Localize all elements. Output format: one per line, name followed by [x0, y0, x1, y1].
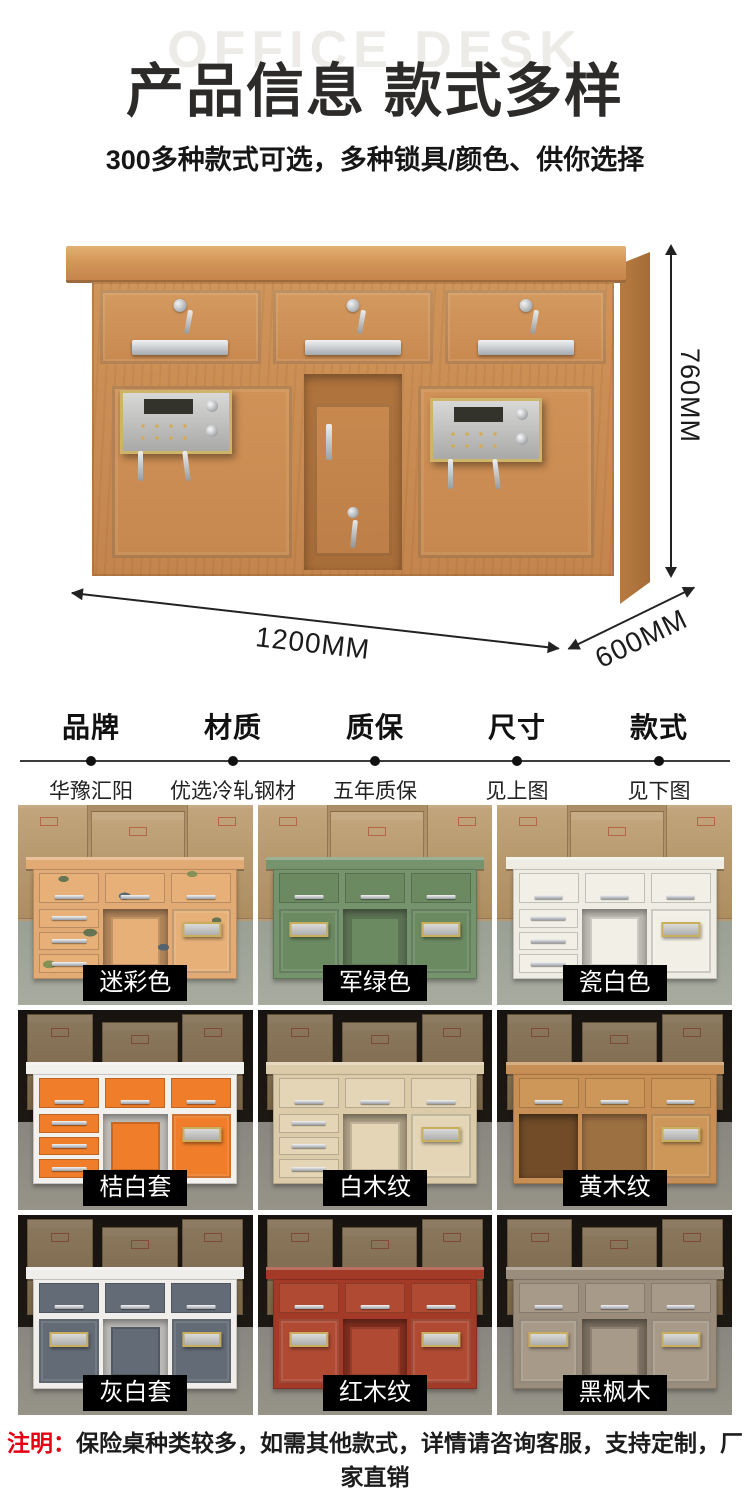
- box-print-mark: [610, 1035, 628, 1044]
- left-cabinet: [39, 1114, 99, 1178]
- variant-label: 桔白套: [83, 1170, 187, 1206]
- lock-panel-keypad: [446, 428, 507, 452]
- variant-grid: 迷彩色: [18, 805, 732, 1415]
- keyhole-icon: [348, 507, 359, 518]
- drawer-handle: [361, 1100, 390, 1104]
- desk-side-panel: [620, 252, 650, 604]
- desk-tabletop: [266, 1267, 484, 1279]
- desk-drawer: [519, 1078, 579, 1108]
- drawer-handle: [478, 340, 574, 355]
- keyhole-icon: [516, 408, 528, 420]
- spec-dot-icon: [654, 756, 664, 766]
- desk-lower: [279, 909, 471, 973]
- desk-tabletop: [26, 1267, 244, 1279]
- spec-column: 品牌 华豫汇阳: [20, 705, 162, 805]
- variant-label: 瓷白色: [563, 965, 667, 1001]
- right-cabinet-door: [172, 1319, 232, 1383]
- combination-lock-panel: [289, 922, 328, 937]
- drawer-lock-icon: [519, 299, 532, 312]
- arrow-up-icon: [665, 244, 677, 255]
- right-cabinet: [172, 1319, 232, 1383]
- desk-drawer: [279, 1114, 339, 1133]
- box-print-mark: [279, 817, 297, 826]
- drawer-row: [519, 1283, 711, 1313]
- drawer-handle: [361, 895, 390, 899]
- desk-thumbnail: [273, 1062, 477, 1184]
- desk-thumbnail: [513, 857, 717, 979]
- desk-thumbnail: [273, 1267, 477, 1389]
- combination-lock-panel: [182, 1332, 221, 1347]
- middle-door: [111, 1122, 160, 1171]
- box-print-mark: [371, 1240, 389, 1249]
- right-cabinet: [406, 374, 606, 570]
- left-cabinet-door: [279, 1319, 339, 1383]
- left-cabinet: [39, 909, 99, 973]
- hanging-key-icon: [138, 451, 143, 481]
- desk-thumbnail: [33, 1267, 237, 1389]
- desk-drawer: [39, 1114, 99, 1133]
- variant-label: 军绿色: [323, 965, 427, 1001]
- keyhole-icon: [516, 433, 528, 445]
- drawer-handle: [305, 340, 401, 355]
- kneehole-recess: [304, 374, 402, 570]
- left-drawer-stack: [39, 1114, 99, 1178]
- combination-lock-panel: [661, 922, 700, 937]
- desk-tabletop: [66, 246, 626, 280]
- desk-drawer: [519, 873, 579, 903]
- spec-column: 质保 五年质保: [304, 705, 446, 805]
- drawer-handle: [291, 1167, 326, 1171]
- combination-lock-panel: [289, 1332, 328, 1347]
- drawer-row: [279, 1283, 471, 1313]
- drawer-handle: [600, 1100, 629, 1104]
- kneehole-recess: [103, 909, 168, 973]
- desk-drawer: [651, 1283, 711, 1313]
- desk-drawer: [519, 1283, 579, 1313]
- desk-body: [513, 869, 717, 979]
- desk-drawer: [171, 1283, 231, 1313]
- drawer-handle: [55, 895, 84, 899]
- product-photo: 760MM 1200MM 600MM: [0, 200, 750, 690]
- lock-panel-lcd: [454, 407, 503, 423]
- drawer-handle: [666, 1100, 695, 1104]
- box-print-mark: [443, 1028, 461, 1037]
- drawer-handle: [291, 1121, 326, 1125]
- right-cabinet-door: [651, 909, 711, 973]
- combination-lock-panel: [120, 390, 232, 454]
- height-dimension-arrow: [670, 246, 672, 576]
- box-print-mark: [51, 1028, 69, 1037]
- desk-drawer: [651, 873, 711, 903]
- desk-tabletop: [506, 857, 724, 869]
- box-print-mark: [697, 817, 715, 826]
- desk-lower: [519, 909, 711, 973]
- drawer-handle: [666, 1305, 695, 1309]
- middle-door: [314, 404, 392, 556]
- lock-panel-keypad: [136, 420, 197, 444]
- spec-value: 优选冷轧钢材: [162, 775, 304, 805]
- box-print-mark: [443, 1233, 461, 1242]
- drawer-lock-icon: [347, 299, 360, 312]
- kneehole-recess: [582, 1319, 647, 1383]
- desk-lower: [519, 1319, 711, 1383]
- desk-drawer: [39, 932, 99, 951]
- box-print-mark: [291, 1028, 309, 1037]
- variant-label: 迷彩色: [83, 965, 187, 1001]
- spec-value: 五年质保: [304, 775, 446, 805]
- drawer-handle: [121, 1305, 150, 1309]
- kneehole-recess: [343, 1114, 408, 1178]
- drawer-row: [519, 873, 711, 903]
- drawer-handle: [534, 1100, 563, 1104]
- variant-photo: 黄木纹: [497, 1010, 732, 1210]
- variant-label: 红木纹: [323, 1375, 427, 1411]
- middle-door: [350, 1327, 399, 1376]
- right-cabinet: [651, 1319, 711, 1383]
- desk-drawer: [345, 1283, 405, 1313]
- hanging-key-icon: [448, 459, 453, 489]
- spec-column: 材质 优选冷轧钢材: [162, 705, 304, 805]
- drawer-handle: [52, 1167, 87, 1171]
- combination-lock-panel: [529, 1332, 568, 1347]
- spec-strip: 品牌 华豫汇阳 材质 优选冷轧钢材 质保 五年质保 尺寸 见上图 款式 见下图: [20, 705, 730, 800]
- left-cabinet-door: [519, 1319, 579, 1383]
- box-print-mark: [218, 817, 236, 826]
- note-text: 保险桌种类较多，如需其他款式，详情请咨询客服，支持定制，厂家直销: [76, 1430, 743, 1489]
- desk-drawer: [39, 1137, 99, 1156]
- right-cabinet: [411, 1319, 471, 1383]
- box-print-mark: [519, 817, 537, 826]
- arrow-down-icon: [665, 567, 677, 578]
- drawer-handle: [361, 1305, 390, 1309]
- left-cabinet: [39, 1319, 99, 1383]
- box-print-mark: [368, 827, 386, 836]
- kneehole-recess: [103, 1114, 168, 1178]
- left-cabinet: [100, 374, 304, 570]
- spec-value: 见下图: [588, 775, 730, 805]
- drawer-handle: [121, 895, 150, 899]
- variant-photo: 黑枫木: [497, 1215, 732, 1415]
- middle-door: [350, 1122, 399, 1171]
- variant-label: 黄木纹: [563, 1170, 667, 1206]
- drawer-row: [39, 1283, 231, 1313]
- left-cabinet: [279, 1114, 339, 1178]
- variant-photo: 瓷白色: [497, 805, 732, 1005]
- desk-lower: [39, 1114, 231, 1178]
- drawer-handle: [295, 1305, 324, 1309]
- drawer-handle: [600, 1305, 629, 1309]
- desk-tabletop: [266, 857, 484, 869]
- desk-thumbnail: [33, 857, 237, 979]
- width-dimension-label: 1200MM: [67, 600, 557, 687]
- drawer-handle: [295, 895, 324, 899]
- drawer-handle: [52, 962, 87, 966]
- drawer-handle: [121, 1100, 150, 1104]
- desk-body: [273, 1074, 477, 1184]
- hanging-key-icon: [357, 310, 366, 335]
- drawer-handle: [52, 916, 87, 920]
- drawer-lock-icon: [174, 299, 187, 312]
- kneehole-recess: [103, 1319, 168, 1383]
- desk-drawer: [171, 873, 231, 903]
- drawer-handle: [600, 895, 629, 899]
- box-print-mark: [51, 1233, 69, 1242]
- box-print-mark: [204, 1028, 222, 1037]
- desk-drawer: [585, 1283, 645, 1313]
- bottom-note: 注明：保险桌种类较多，如需其他款式，详情请咨询客服，支持定制，厂家直销: [0, 1424, 750, 1489]
- desk-lower: [279, 1114, 471, 1178]
- desk-thumbnail: [513, 1062, 717, 1184]
- desk-tabletop: [26, 857, 244, 869]
- drawer-handle: [291, 1144, 326, 1148]
- hanging-key-icon: [350, 520, 358, 548]
- desk-drawer: [345, 1078, 405, 1108]
- desk-body: [513, 1279, 717, 1389]
- keyhole-icon: [206, 400, 218, 412]
- product-info-page: OFFICE DESK 产品信息 款式多样 300多种款式可选，多种锁具/颜色、…: [0, 0, 750, 1489]
- drawer-handle: [52, 939, 87, 943]
- variant-photo: 迷彩色: [18, 805, 253, 1005]
- right-cabinet: [172, 909, 232, 973]
- right-cabinet-door: [172, 909, 232, 973]
- combination-lock-panel: [422, 1332, 461, 1347]
- box-print-mark: [683, 1028, 701, 1037]
- drawer-handle: [55, 1305, 84, 1309]
- left-cabinet-door: [39, 1319, 99, 1383]
- box-print-mark: [131, 1035, 149, 1044]
- variant-photo: 桔白套: [18, 1010, 253, 1210]
- kneehole-recess: [582, 909, 647, 973]
- box-print-mark: [608, 827, 626, 836]
- box-print-mark: [458, 817, 476, 826]
- desk-body: [33, 869, 237, 979]
- desk-thumbnail: [33, 1062, 237, 1184]
- middle-door: [590, 1327, 639, 1376]
- right-cabinet-door: [411, 1319, 471, 1383]
- drawer-handle: [427, 1100, 456, 1104]
- drawer-handle: [295, 1100, 324, 1104]
- drawer-row: [519, 1078, 711, 1108]
- desk-drawer: [100, 290, 261, 364]
- drawer-handle: [132, 340, 228, 355]
- drawer-row: [279, 873, 471, 903]
- spec-column: 款式 见下图: [588, 705, 730, 805]
- kneehole-recess: [343, 909, 408, 973]
- spec-dot-icon: [228, 756, 238, 766]
- desk-drawer: [411, 1078, 471, 1108]
- middle-door: [350, 917, 399, 966]
- desk-tabletop: [26, 1062, 244, 1074]
- spec-label: 品牌: [20, 705, 162, 747]
- right-cabinet-door: [651, 1319, 711, 1383]
- left-drawer-stack: [519, 909, 579, 973]
- drawer-handle: [427, 895, 456, 899]
- desk-thumbnail: [513, 1267, 717, 1389]
- desk-drawer: [519, 909, 579, 928]
- depth-dimension: 600MM: [568, 587, 711, 684]
- middle-door-handle: [326, 424, 332, 460]
- box-print-mark: [40, 817, 58, 826]
- spec-value: 华豫汇阳: [20, 775, 162, 805]
- right-cabinet: [651, 909, 711, 973]
- note-prefix: 注明：: [7, 1430, 76, 1456]
- lock-panel-lcd: [144, 399, 193, 415]
- desk-lower: [39, 1319, 231, 1383]
- desk-body: [273, 1279, 477, 1389]
- left-cabinet: [519, 1114, 579, 1178]
- spec-label: 款式: [588, 705, 730, 747]
- keyhole-icon: [206, 425, 218, 437]
- desk-drawer: [39, 1283, 99, 1313]
- combination-lock-panel: [49, 1332, 88, 1347]
- desk-drawer: [411, 873, 471, 903]
- left-cabinet: [519, 909, 579, 973]
- combination-lock-panel: [182, 1127, 221, 1142]
- combination-lock-panel: [422, 1127, 461, 1142]
- spec-dot-icon: [370, 756, 380, 766]
- combination-lock-panel: [661, 1332, 700, 1347]
- desk-drawer: [39, 1078, 99, 1108]
- spec-dot-icon: [512, 756, 522, 766]
- right-cabinet: [411, 909, 471, 973]
- drawer-row: [39, 1078, 231, 1108]
- desk-drawer: [279, 1283, 339, 1313]
- desk-drawer: [585, 873, 645, 903]
- left-drawer-stack: [39, 909, 99, 973]
- combination-lock-panel: [430, 398, 542, 462]
- desk-drawer: [651, 1078, 711, 1108]
- middle-door: [111, 917, 160, 966]
- drawer-row: [100, 290, 606, 364]
- drawer-handle: [531, 939, 566, 943]
- desk-drawer: [279, 873, 339, 903]
- box-print-mark: [531, 1233, 549, 1242]
- drawer-handle: [531, 962, 566, 966]
- right-cabinet-door: [411, 1114, 471, 1178]
- box-print-mark: [610, 1240, 628, 1249]
- left-cabinet: [279, 1319, 339, 1383]
- open-compartment: [519, 1114, 579, 1178]
- desk-drawer: [585, 1078, 645, 1108]
- desk-body: [273, 869, 477, 979]
- middle-door: [111, 1327, 160, 1376]
- page-subtitle: 300多种款式可选，多种锁具/颜色、供你选择: [0, 138, 750, 177]
- spec-dot-icon: [86, 756, 96, 766]
- box-print-mark: [683, 1233, 701, 1242]
- middle-door: [590, 917, 639, 966]
- height-dimension-label: 760MM: [674, 348, 705, 443]
- left-cabinet: [279, 909, 339, 973]
- right-cabinet-door: [172, 1114, 232, 1178]
- desk-drawer: [445, 290, 606, 364]
- spec-label: 尺寸: [446, 705, 588, 747]
- desk-drawer: [411, 1283, 471, 1313]
- desk-drawer: [105, 1078, 165, 1108]
- variant-photo: 红木纹: [258, 1215, 493, 1415]
- depth-dimension-label: 600MM: [572, 594, 712, 684]
- combination-lock-panel: [422, 922, 461, 937]
- spec-column: 尺寸 见上图: [446, 705, 588, 805]
- right-cabinet: [172, 1114, 232, 1178]
- hanging-key-icon: [530, 310, 539, 335]
- desk-drawer: [105, 873, 165, 903]
- drawer-handle: [666, 895, 695, 899]
- right-cabinet-door: [651, 1114, 711, 1178]
- box-print-mark: [129, 827, 147, 836]
- right-cabinet-door: [411, 909, 471, 973]
- left-drawer-stack: [279, 1114, 339, 1178]
- box-print-mark: [371, 1035, 389, 1044]
- desk-thumbnail: [273, 857, 477, 979]
- box-print-mark: [131, 1240, 149, 1249]
- desk-drawer: [105, 1283, 165, 1313]
- variant-label: 白木纹: [323, 1170, 427, 1206]
- desk-body: [92, 282, 614, 576]
- variant-label: 灰白套: [83, 1375, 187, 1411]
- desk-tabletop: [506, 1267, 724, 1279]
- drawer-handle: [427, 1305, 456, 1309]
- box-print-mark: [531, 1028, 549, 1037]
- desk-lower: [279, 1319, 471, 1383]
- drawer-handle: [534, 1305, 563, 1309]
- right-cabinet: [651, 1114, 711, 1178]
- kneehole-recess: [582, 1114, 647, 1178]
- desk-drawer: [39, 873, 99, 903]
- variant-photo: 军绿色: [258, 805, 493, 1005]
- desk-tabletop: [266, 1062, 484, 1074]
- drawer-row: [279, 1078, 471, 1108]
- combination-lock-panel: [182, 922, 221, 937]
- desk-body: [33, 1074, 237, 1184]
- box-print-mark: [291, 1233, 309, 1242]
- desk-body: [513, 1074, 717, 1184]
- desk-body: [33, 1279, 237, 1389]
- drawer-handle: [534, 895, 563, 899]
- desk-drawer: [171, 1078, 231, 1108]
- drawer-handle: [52, 1144, 87, 1148]
- hanging-key-icon: [184, 310, 193, 335]
- desk-drawer: [519, 932, 579, 951]
- spec-label: 材质: [162, 705, 304, 747]
- desk-drawer: [39, 909, 99, 928]
- drawer-handle: [187, 895, 216, 899]
- width-dimension: 1200MM: [67, 592, 558, 687]
- right-cabinet: [411, 1114, 471, 1178]
- variant-label: 黑枫木: [563, 1375, 667, 1411]
- desk-tabletop: [506, 1062, 724, 1074]
- drawer-handle: [531, 916, 566, 920]
- desk-lower: [519, 1114, 711, 1178]
- variant-photo: 灰白套: [18, 1215, 253, 1415]
- drawer-handle: [187, 1305, 216, 1309]
- desk-drawer: [279, 1078, 339, 1108]
- drawer-row: [39, 873, 231, 903]
- kneehole-recess: [343, 1319, 408, 1383]
- desk-drawer: [345, 873, 405, 903]
- left-cabinet: [519, 1319, 579, 1383]
- drawer-handle: [55, 1100, 84, 1104]
- desk-drawer: [279, 1137, 339, 1156]
- combination-lock-panel: [661, 1127, 700, 1142]
- variant-photo: 白木纹: [258, 1010, 493, 1210]
- left-cabinet-door: [279, 909, 339, 973]
- desk-lower: [39, 909, 231, 973]
- spec-label: 质保: [304, 705, 446, 747]
- desk-drawer: [273, 290, 434, 364]
- box-print-mark: [204, 1233, 222, 1242]
- drawer-handle: [52, 1121, 87, 1125]
- drawer-handle: [187, 1100, 216, 1104]
